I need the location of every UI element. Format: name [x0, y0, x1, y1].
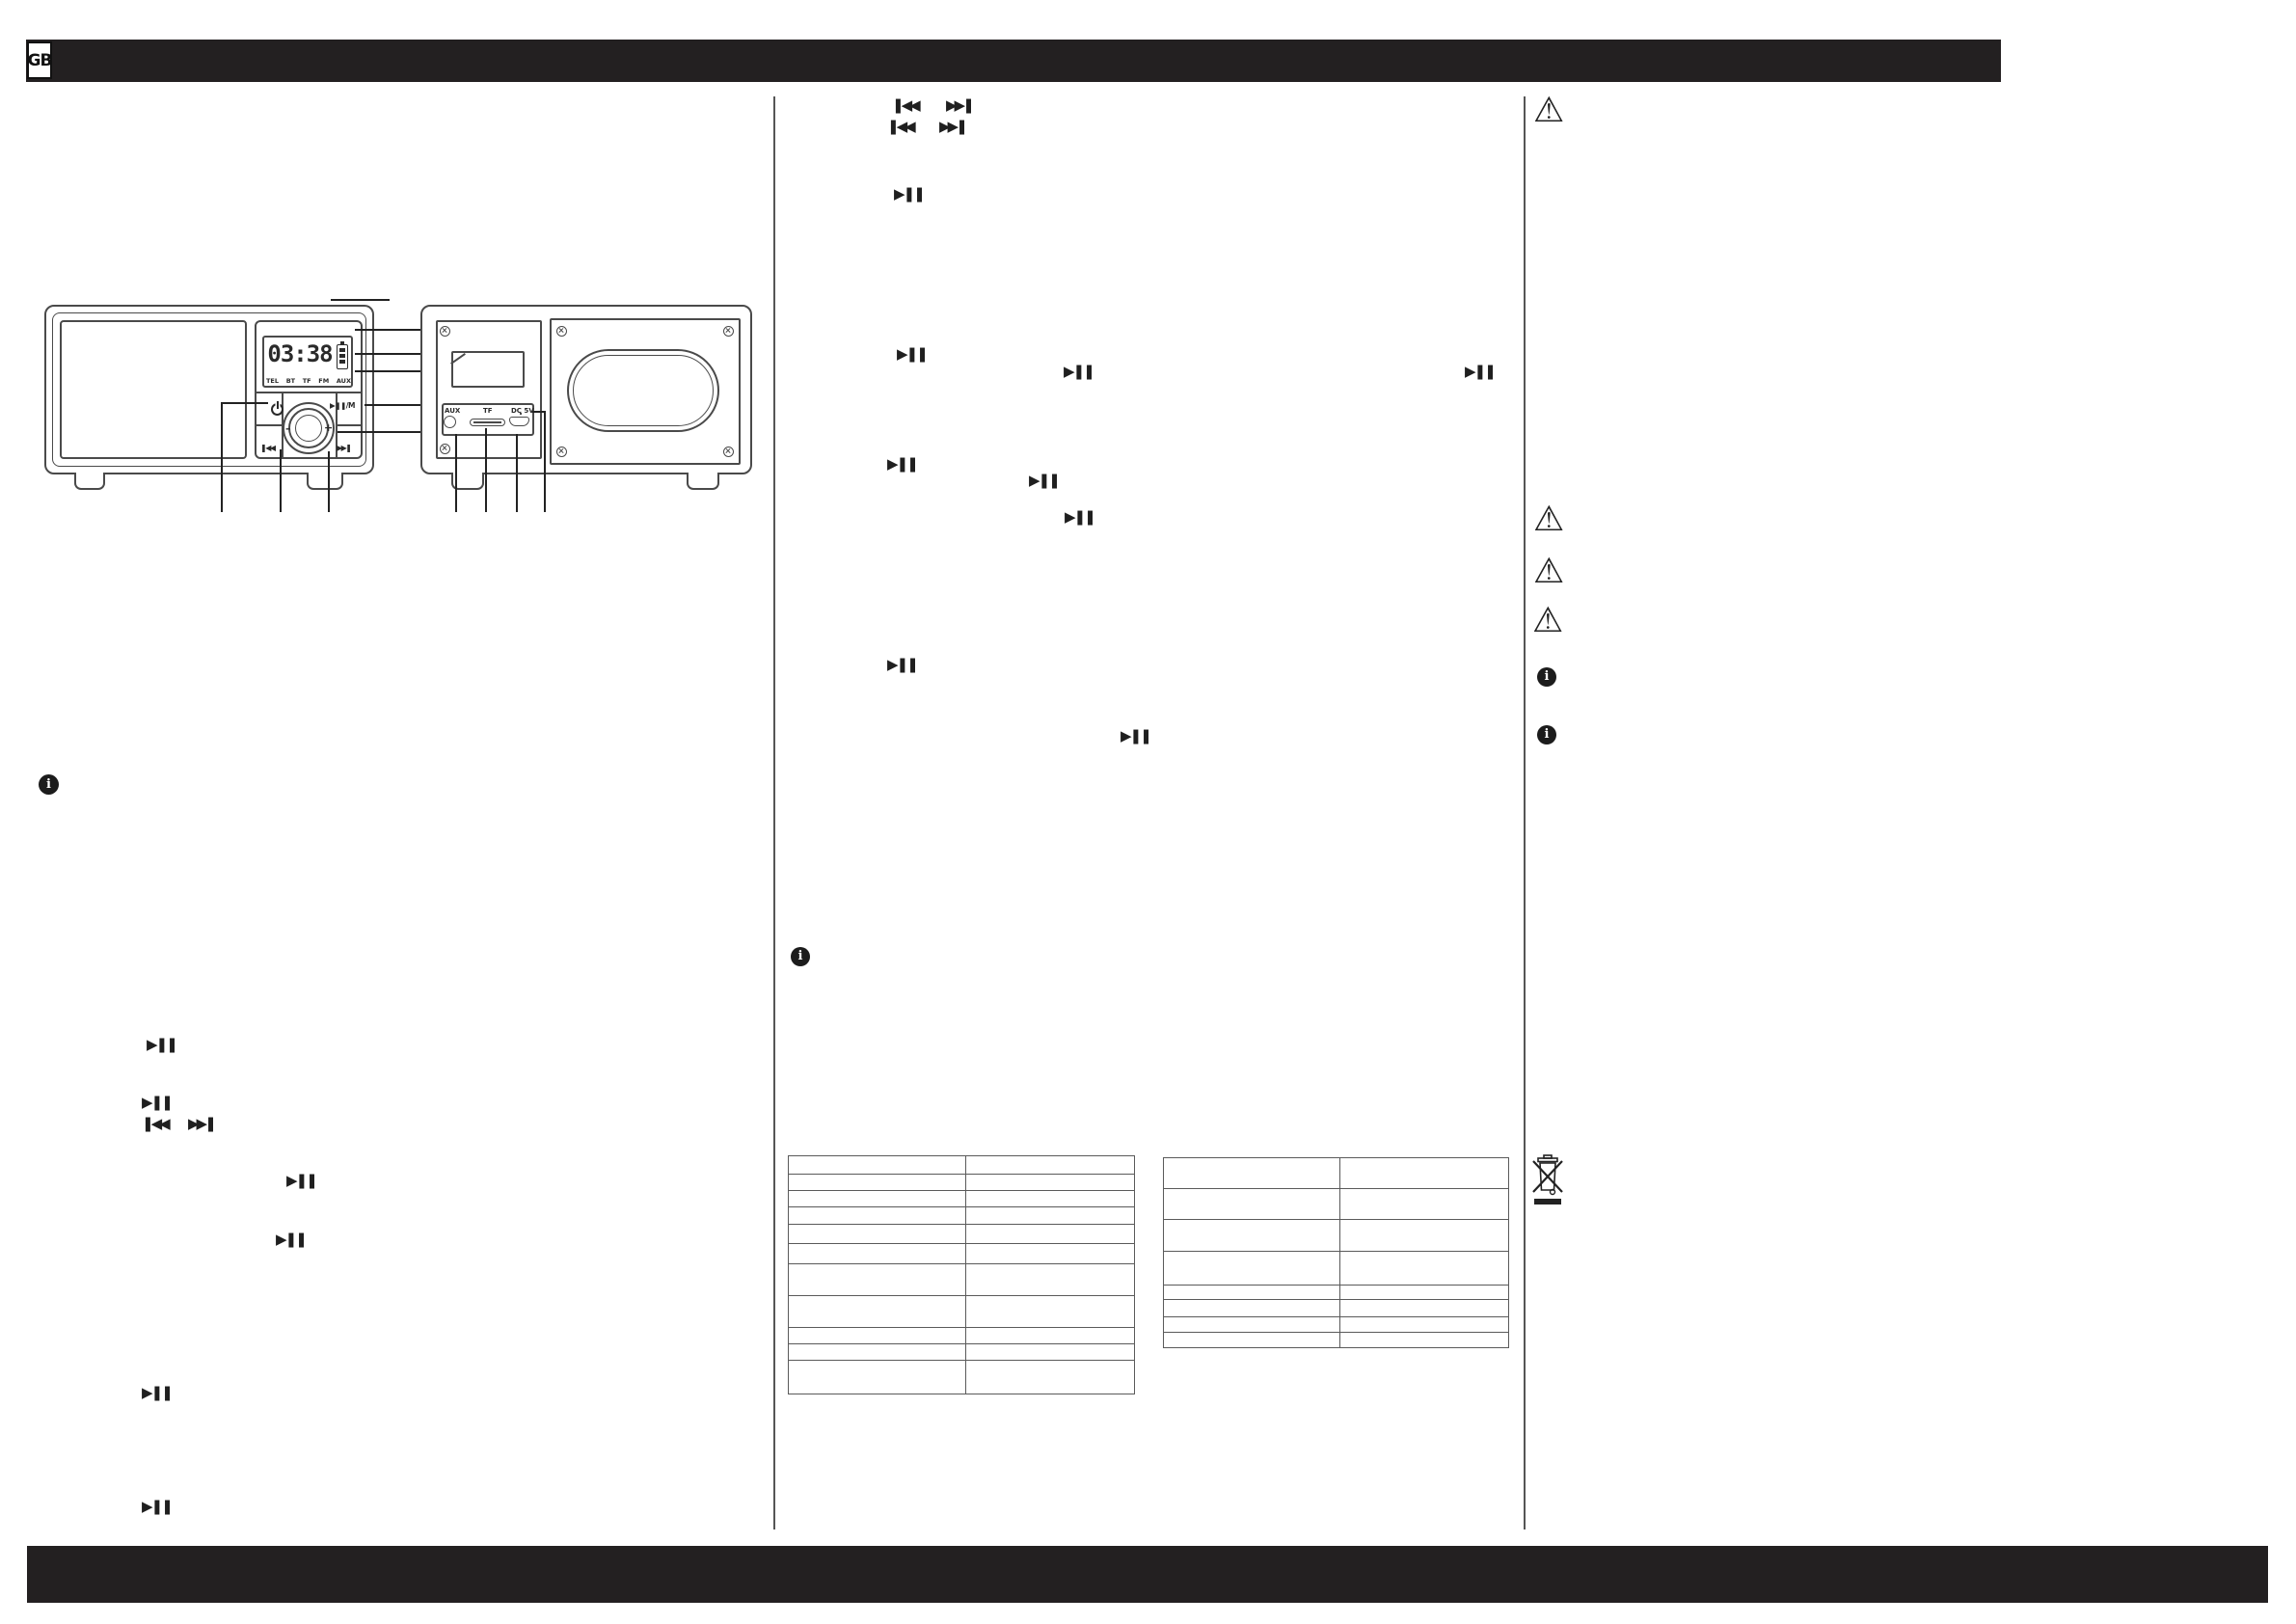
skip-back-icon: ❚◀◀: [892, 96, 918, 114]
lcd-mode-label: TEL: [266, 377, 279, 385]
play-pause-icon: ▶❚❚: [147, 1036, 176, 1053]
column-divider-left: [773, 96, 775, 1529]
table-row: [1164, 1189, 1509, 1220]
play-pause-icon: ▶❚❚: [276, 1231, 306, 1248]
callout-line: [221, 402, 223, 512]
lcd-mode-label: TF: [303, 377, 311, 385]
table-cell: [1164, 1252, 1340, 1286]
aux-jack-icon: [444, 416, 456, 428]
back-left-panel: [436, 320, 542, 459]
screw-icon: [723, 447, 734, 457]
spec-table-left: [788, 1155, 1135, 1394]
screw-icon: [556, 326, 567, 337]
table-cell: [966, 1344, 1135, 1361]
spec-table-right: [1163, 1157, 1509, 1348]
table-cell: [789, 1264, 966, 1296]
table-cell: [1164, 1158, 1340, 1189]
table-cell: [1340, 1220, 1509, 1252]
info-icon: i: [39, 774, 59, 795]
table-row: [789, 1225, 1135, 1244]
language-badge: GB: [27, 41, 52, 79]
table-cell: [789, 1296, 966, 1328]
table-row: [789, 1207, 1135, 1225]
table-cell: [789, 1244, 966, 1264]
lcd-mode-labels: TEL BT TF FM AUX: [266, 377, 351, 385]
panel-grid-line: [257, 392, 361, 393]
skip-back-icon: ❚◀◀: [142, 1115, 168, 1132]
column-divider-right: [1524, 96, 1526, 1529]
volume-knob-cap: [295, 415, 322, 442]
table-cell: [789, 1344, 966, 1361]
skip-back-icon: ❚◀◀: [887, 118, 913, 135]
table-cell: [966, 1264, 1135, 1296]
footer-bar: [27, 1546, 2268, 1603]
table-cell: [1164, 1300, 1340, 1317]
table-row: [789, 1264, 1135, 1296]
table-cell: [1164, 1189, 1340, 1220]
tf-port-label: TF: [483, 407, 493, 415]
info-icon: i: [791, 947, 810, 966]
table-row: [789, 1191, 1135, 1207]
table-cell: [1340, 1189, 1509, 1220]
speaker-grille: [60, 320, 247, 459]
callout-line: [455, 434, 457, 512]
table-cell: [789, 1361, 966, 1394]
info-icon: i: [1537, 725, 1556, 744]
table-row: [1164, 1252, 1509, 1286]
table-cell: [966, 1361, 1135, 1394]
table-cell: [966, 1296, 1135, 1328]
lcd-mode-label: FM: [318, 377, 329, 385]
table-row: [789, 1156, 1135, 1175]
table-cell: [789, 1207, 966, 1225]
skip-forward-icon: ▶▶❚: [188, 1115, 214, 1132]
skip-forward-icon: ▶▶❚: [946, 96, 972, 114]
table-cell: [966, 1225, 1135, 1244]
screw-icon: [440, 444, 450, 454]
play-pause-icon: ▶❚❚: [286, 1172, 316, 1189]
volume-plus-label: +: [324, 421, 333, 434]
table-row: [1164, 1286, 1509, 1300]
play-pause-icon: ▶❚❚: [887, 455, 917, 473]
usb-port-icon: [509, 417, 529, 426]
callout-line: [222, 402, 268, 404]
play-pause-icon: ▶❚❚: [1065, 508, 1094, 526]
lcd-mode-label: BT: [286, 377, 295, 385]
play-pause-icon: ▶❚❚: [1029, 472, 1059, 489]
back-foot-right: [687, 473, 719, 490]
aux-port-label: AUX: [445, 407, 460, 415]
table-cell: [1164, 1286, 1340, 1300]
callout-line: [331, 299, 390, 301]
play-pause-icon: ▶❚❚: [1121, 727, 1150, 744]
table-cell: [966, 1244, 1135, 1264]
warning-icon: ⚠: [1532, 607, 1563, 636]
table-cell: [1340, 1300, 1509, 1317]
table-cell: [1340, 1252, 1509, 1286]
battery-icon: [337, 344, 348, 369]
callout-line: [338, 431, 434, 433]
warning-icon: ⚠: [1533, 96, 1564, 125]
table-row: [789, 1244, 1135, 1264]
prev-button-label: ❚◀◀: [260, 444, 275, 452]
play-pause-icon: ▶❚❚: [142, 1384, 172, 1401]
table-cell: [1164, 1220, 1340, 1252]
bass-port-oval-inner: [573, 355, 714, 426]
front-foot-left: [74, 473, 105, 490]
table-row: [789, 1361, 1135, 1394]
table-row: [789, 1344, 1135, 1361]
table-row: [1164, 1333, 1509, 1348]
weee-crossed-bin-icon: [1531, 1153, 1564, 1207]
callout-line: [516, 434, 518, 512]
next-button-label: ▶▶❚: [337, 444, 351, 452]
warning-icon: ⚠: [1533, 505, 1564, 534]
screw-icon: [556, 447, 567, 457]
volume-minus-label: –: [285, 422, 291, 435]
table-row: [1164, 1158, 1509, 1189]
table-row: [1164, 1300, 1509, 1317]
table-cell: [789, 1225, 966, 1244]
table-row: [1164, 1220, 1509, 1252]
table-cell: [966, 1175, 1135, 1191]
callout-line: [280, 449, 282, 512]
play-pause-icon: ▶❚❚: [894, 185, 924, 203]
table-cell: [966, 1328, 1135, 1344]
screw-icon: [723, 326, 734, 337]
play-pause-icon: ▶❚❚: [142, 1498, 172, 1515]
panel-grid-line: [257, 424, 282, 426]
table-cell: [789, 1156, 966, 1175]
table-cell: [1340, 1158, 1509, 1189]
callout-line: [544, 411, 546, 512]
callout-line: [328, 451, 330, 512]
table-cell: [789, 1191, 966, 1207]
table-row: [789, 1328, 1135, 1344]
table-cell: [966, 1207, 1135, 1225]
play-pause-icon: ▶❚❚: [1465, 363, 1495, 380]
callout-line: [485, 428, 487, 512]
usb-pinhole: [520, 413, 522, 415]
table-row: [789, 1296, 1135, 1328]
play-pause-icon: ▶❚❚: [142, 1094, 172, 1111]
header-bar: GB: [26, 40, 2001, 82]
table-cell: [789, 1175, 966, 1191]
table-cell: [1340, 1317, 1509, 1333]
dc-port-label: DC 5V: [511, 407, 534, 415]
play-pause-icon: ▶❚❚: [1064, 363, 1094, 380]
table-cell: [1340, 1333, 1509, 1348]
table-cell: [789, 1328, 966, 1344]
table-row: [789, 1175, 1135, 1191]
manual-page: GB 03:38 TEL BT TF FM AUX ▶❚❚/M: [0, 0, 2296, 1624]
front-foot-right: [307, 473, 343, 490]
table-cell: [966, 1191, 1135, 1207]
skip-forward-icon: ▶▶❚: [939, 118, 965, 135]
tf-slot-detail: [473, 421, 501, 423]
power-button-icon: [271, 403, 284, 416]
play-mode-button-label: ▶❚❚/M: [324, 401, 361, 410]
table-cell: [1340, 1286, 1509, 1300]
table-row: [1164, 1317, 1509, 1333]
screw-icon: [440, 326, 450, 337]
panel-grid-line: [336, 424, 361, 426]
warning-icon: ⚠: [1533, 557, 1564, 586]
lcd-time: 03:38: [265, 340, 335, 367]
table-cell: [966, 1156, 1135, 1175]
table-cell: [1164, 1333, 1340, 1348]
play-pause-icon: ▶❚❚: [887, 656, 917, 673]
table-cell: [1164, 1317, 1340, 1333]
info-icon: i: [1537, 667, 1556, 687]
play-pause-icon: ▶❚❚: [897, 345, 927, 363]
lcd-mode-label: AUX: [337, 377, 351, 385]
